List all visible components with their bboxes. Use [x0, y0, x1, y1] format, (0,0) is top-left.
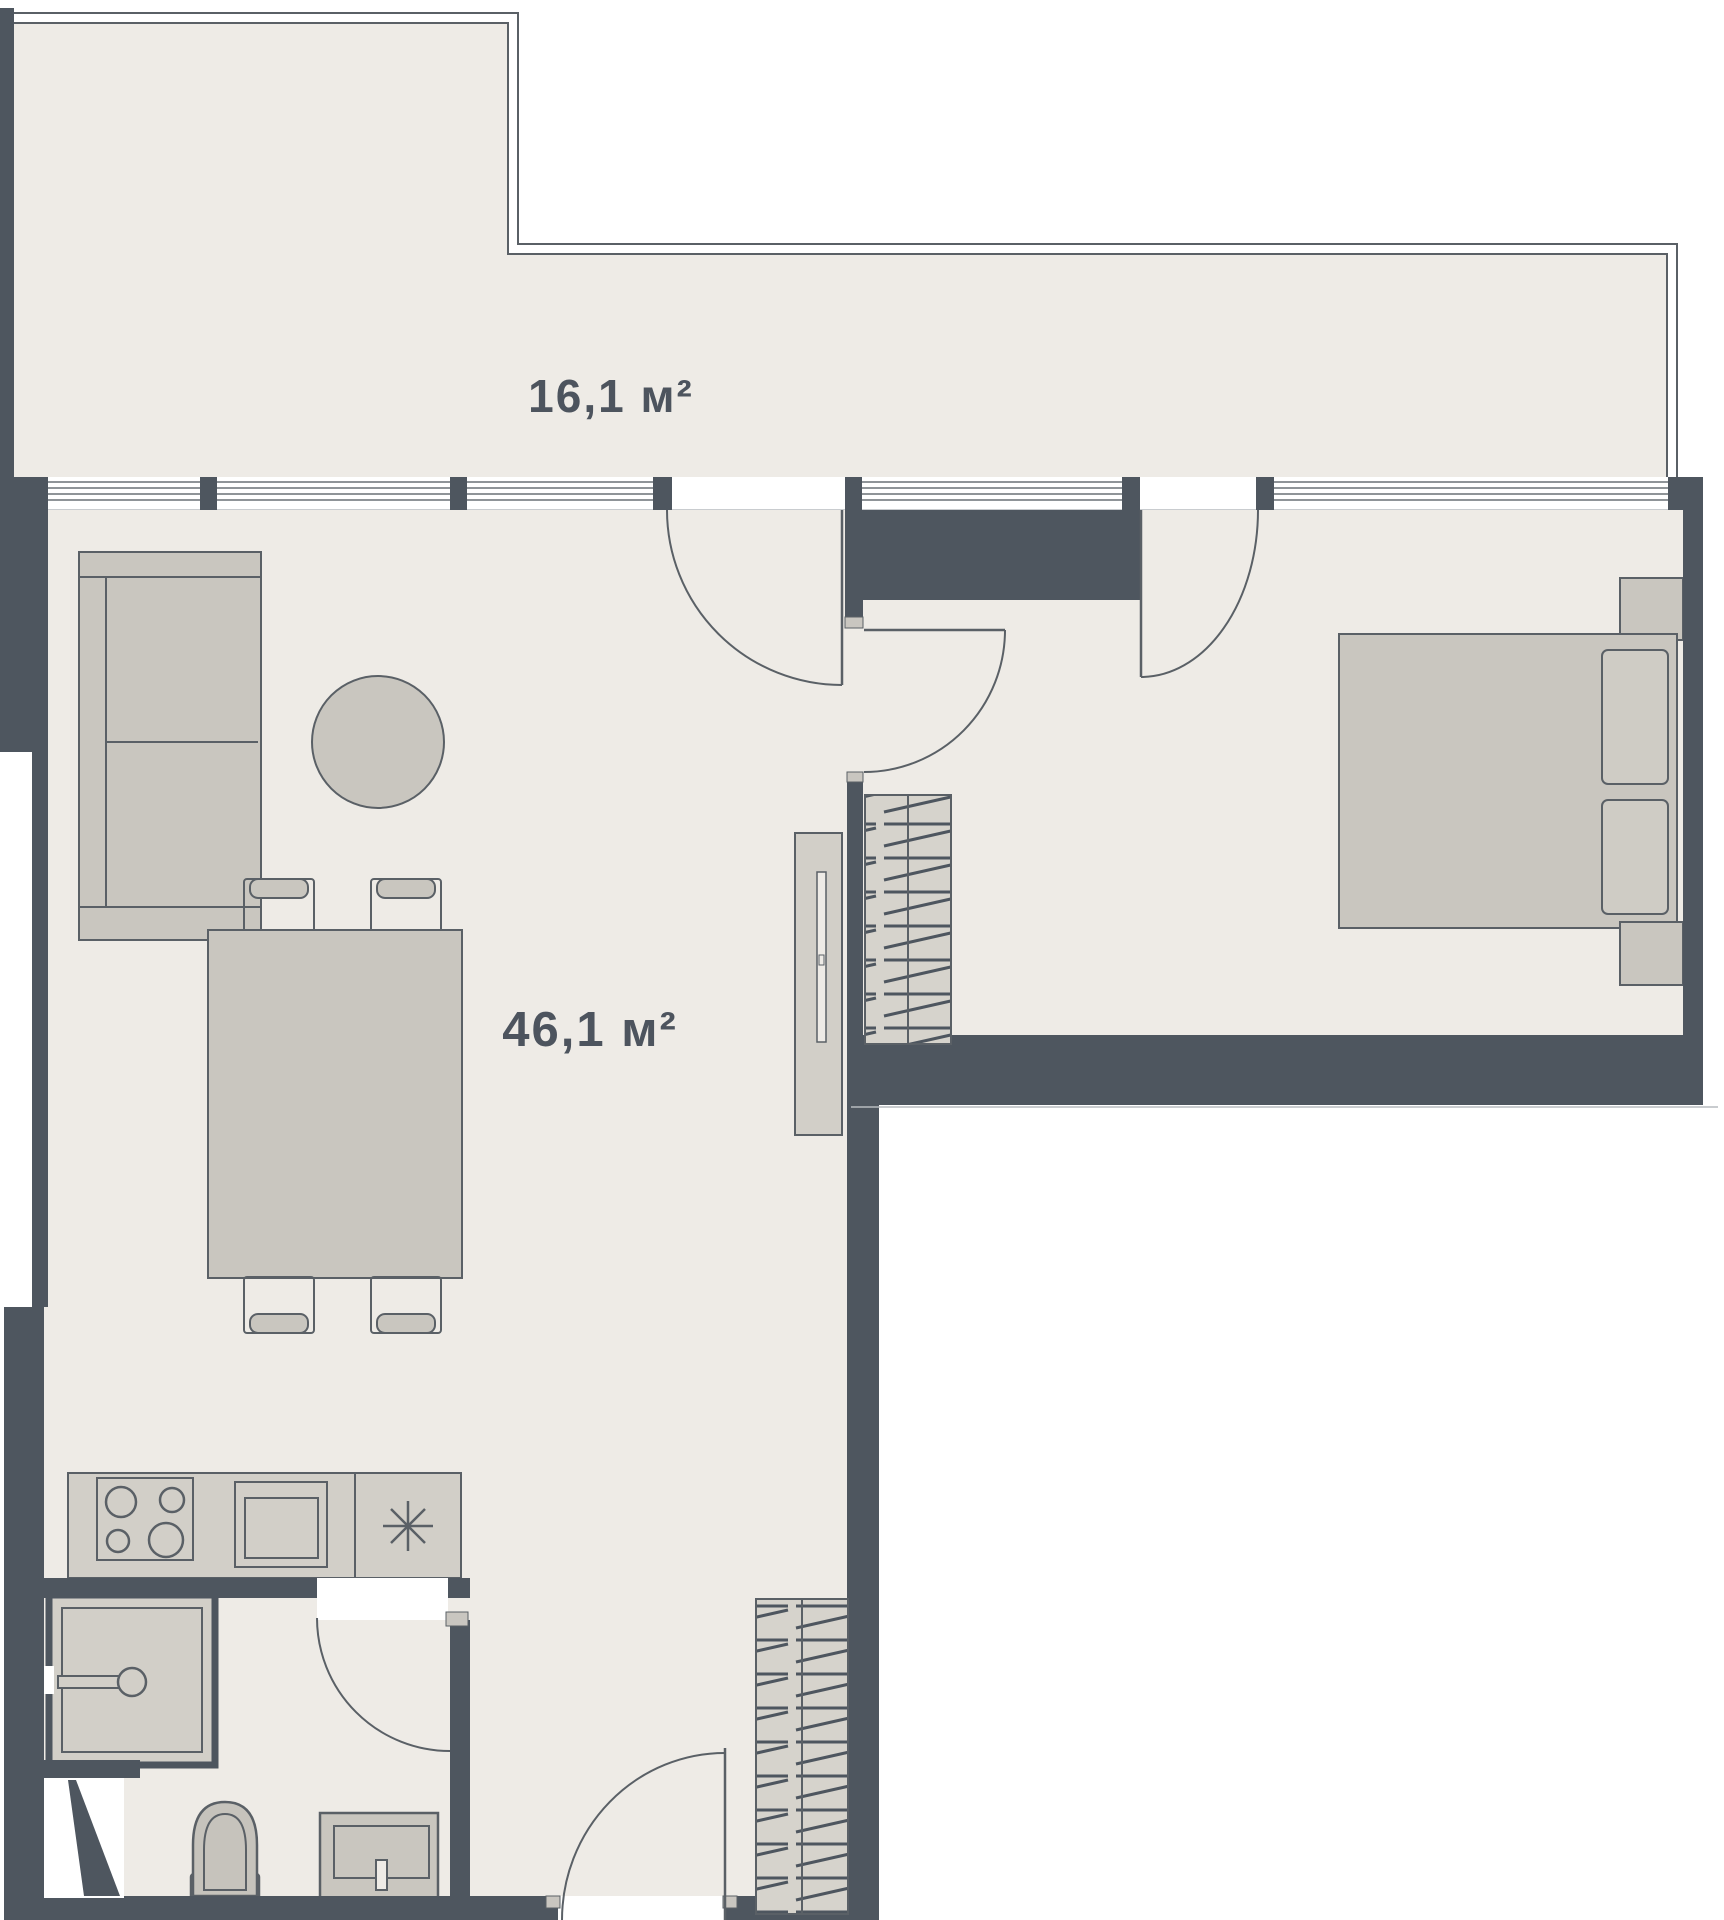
faucet [376, 1860, 387, 1890]
hall-partition-wall [847, 782, 863, 1035]
window-mullion [845, 477, 862, 510]
door-jamb-cap [546, 1896, 560, 1908]
window-mullion [653, 477, 672, 510]
toilet-bowl [193, 1802, 257, 1896]
shower-partition-wall [38, 1760, 140, 1778]
pillow [1602, 650, 1668, 784]
window-mullion [200, 477, 217, 510]
nightstand [1620, 578, 1683, 640]
floor-plan-drawing: 16,1 м² 46,1 м² [0, 0, 1724, 1920]
hall-right-wall [847, 1035, 879, 1920]
wardrobe-entrance [756, 1599, 848, 1914]
shower-drain [118, 1668, 146, 1696]
bedroom-south-wall [851, 1035, 1703, 1105]
bedroom [1339, 578, 1683, 985]
window-wall [14, 477, 1703, 510]
left-wall-lower [4, 1307, 44, 1920]
left-wall-upper [0, 477, 48, 752]
bathroom-doorway-gap [317, 1578, 448, 1620]
living-area-label: 46,1 м² [502, 1003, 678, 1057]
dining-table [208, 930, 462, 1278]
vent-shaft [44, 1778, 124, 1898]
terrace-area-label: 16,1 м² [528, 370, 694, 422]
door-jamb-cap [446, 1612, 468, 1626]
pillow [1602, 800, 1668, 914]
coffee-table [312, 676, 444, 808]
entrance-doorway-gap [558, 1896, 725, 1920]
door-jamb-cap [845, 617, 863, 628]
terrace-floor [10, 12, 1678, 500]
right-wall [1683, 477, 1703, 1105]
terrace-left-wall [0, 8, 14, 480]
terrace [0, 8, 1678, 500]
window-mullion [450, 477, 467, 510]
shower-rail [58, 1676, 122, 1688]
floor-plan-page: 16,1 м² 46,1 м² [0, 0, 1724, 1920]
bathroom-east-wall [450, 1620, 470, 1920]
tv-panel [795, 833, 842, 1135]
shower [42, 1595, 215, 1765]
closet-block-wall [845, 510, 1140, 600]
window-mullion [1122, 477, 1140, 510]
dining-set [208, 879, 462, 1333]
closet-block-stub [845, 600, 863, 617]
sofa [79, 552, 261, 940]
door-jamb-cap [847, 772, 863, 782]
left-wall-recessed [32, 752, 48, 1307]
kitchen-counter [68, 1473, 461, 1578]
wardrobe-hall [865, 795, 951, 1044]
bottom-wall-left [4, 1896, 558, 1920]
toilet [191, 1802, 259, 1908]
window-mullion [1256, 477, 1274, 510]
tv-screen [817, 872, 826, 1042]
nightstand [1620, 922, 1683, 985]
vanity-sink [320, 1813, 438, 1905]
